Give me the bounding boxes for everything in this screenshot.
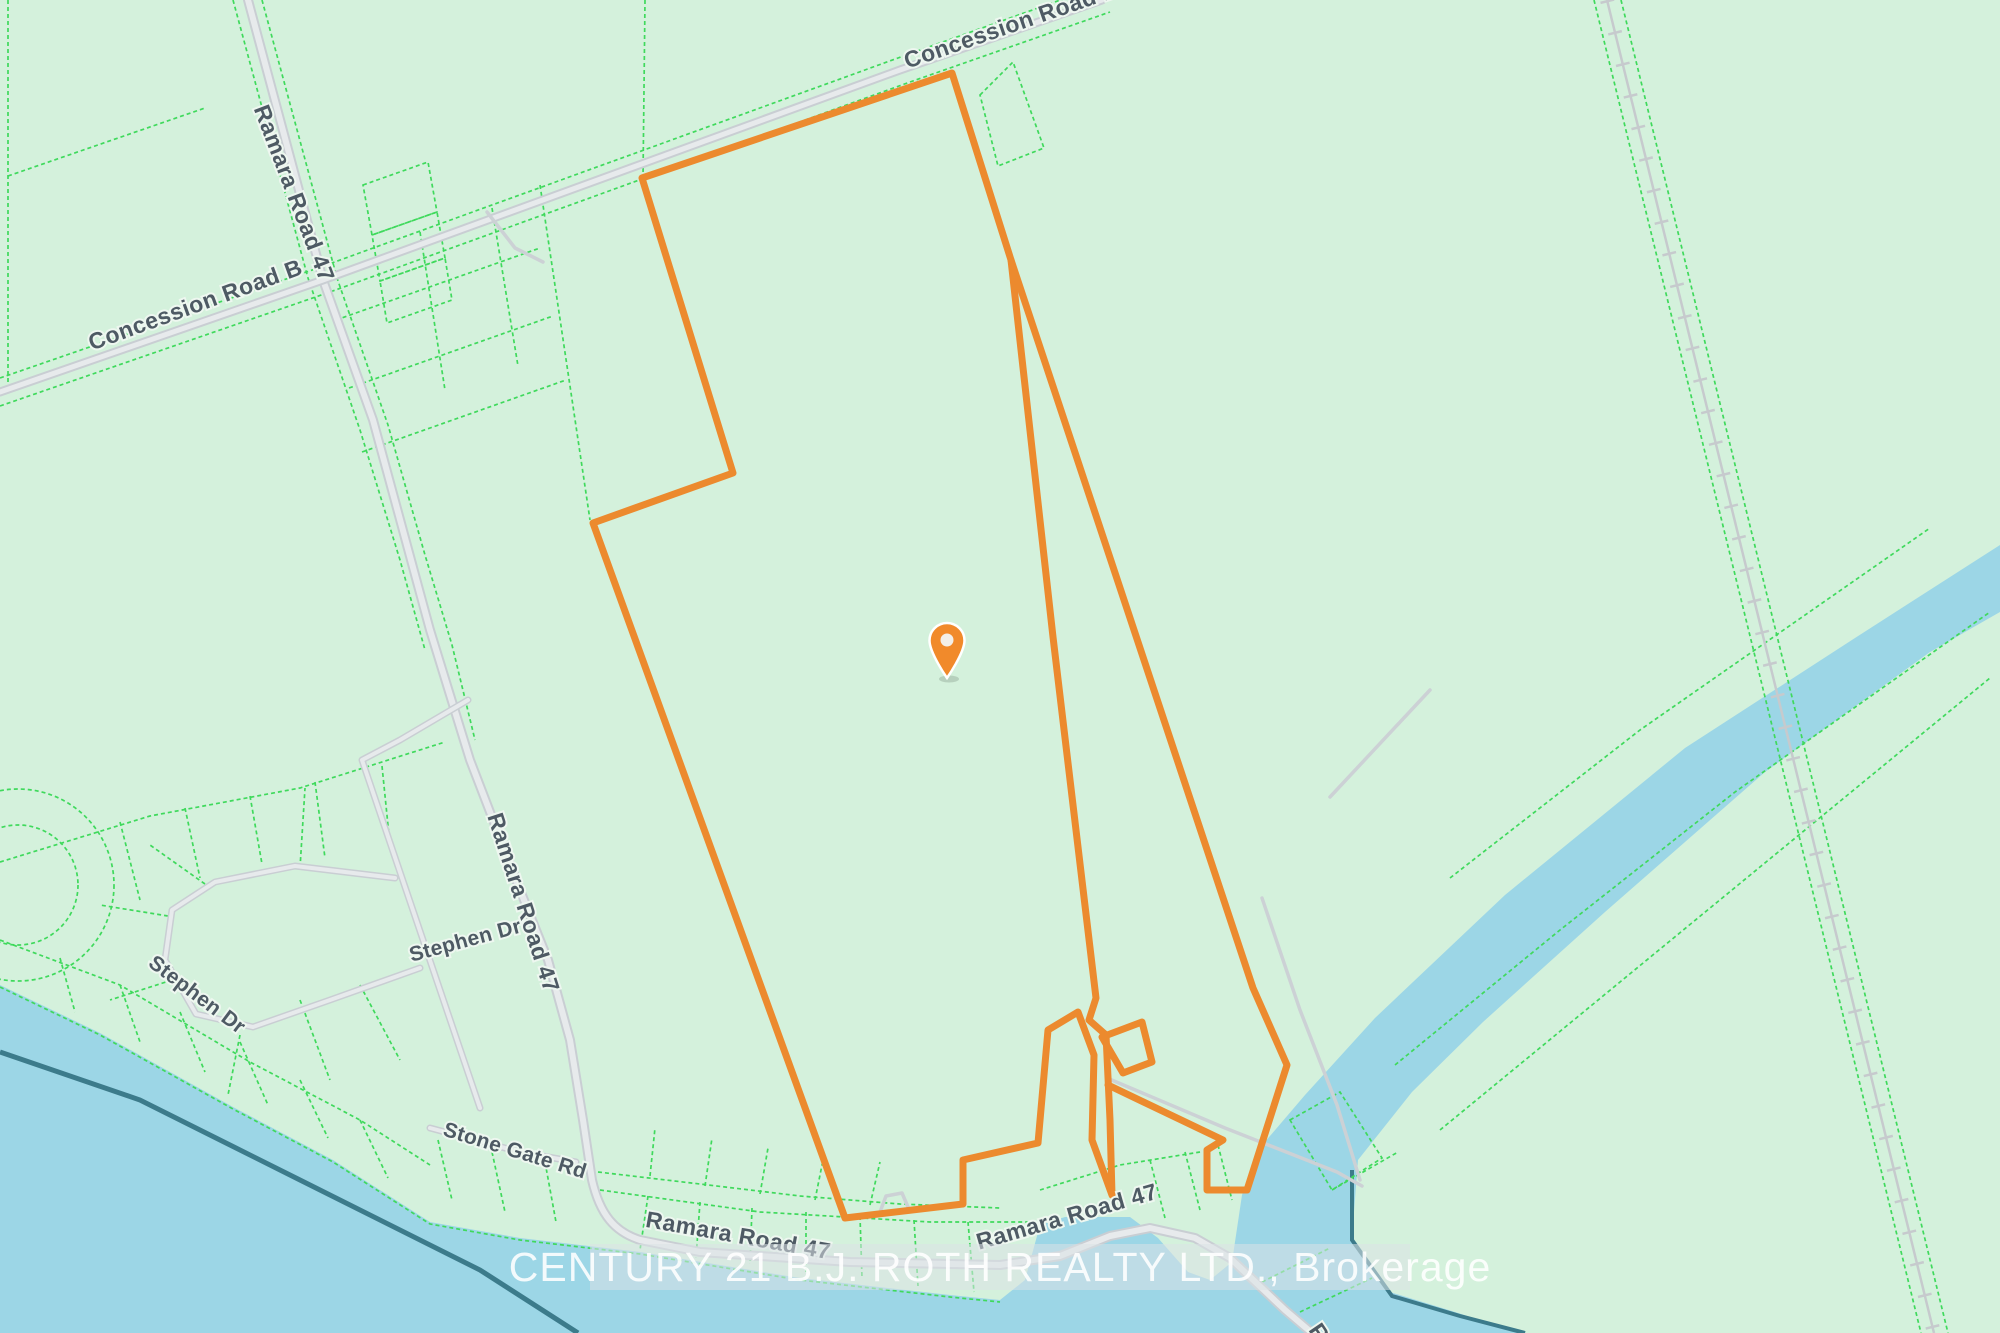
watermark-text: CENTURY 21 B.J. ROTH REALTY LTD., Broker… (509, 1244, 1492, 1290)
map-canvas[interactable]: Ramara Road 47 Concession Road B Concess… (0, 0, 2000, 1333)
map-viewport[interactable]: Ramara Road 47 Concession Road B Concess… (0, 0, 2000, 1333)
watermark: CENTURY 21 B.J. ROTH REALTY LTD., Broker… (509, 1244, 1492, 1290)
pin-hole (941, 634, 954, 647)
